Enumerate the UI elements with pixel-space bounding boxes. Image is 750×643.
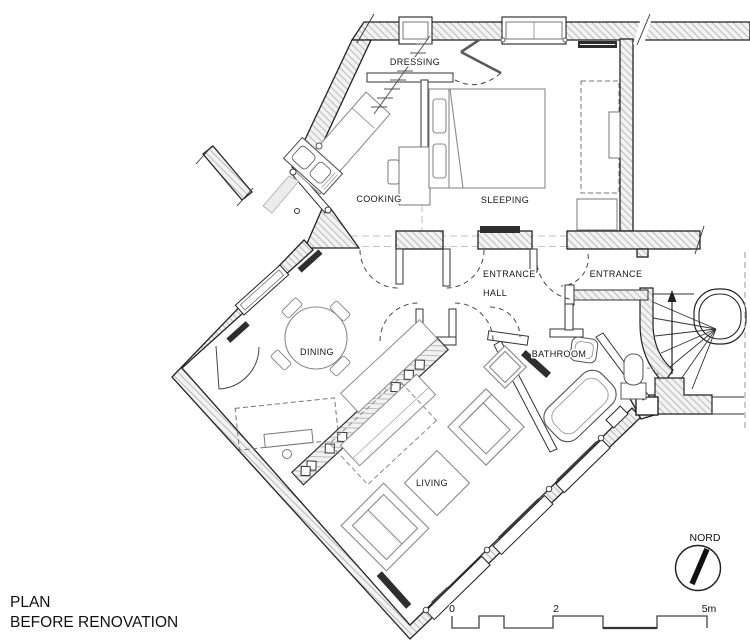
north-label: NORD	[690, 532, 721, 544]
door-lintel	[480, 226, 520, 233]
dining-table-icon	[270, 297, 350, 376]
floor-plan-canvas: DRESSING COOKING SLEEPING ENTRANCE HALL …	[0, 0, 750, 643]
bed-icon	[429, 89, 545, 188]
plan-title-line2: BEFORE RENOVATION	[10, 614, 178, 631]
plan-title-line1: PLAN	[10, 594, 51, 611]
room-label-entrance: ENTRANCE	[590, 269, 643, 279]
radiator-icon	[578, 41, 617, 48]
scale-tick-2: 2	[553, 603, 559, 615]
faucet-icon	[316, 143, 322, 149]
wall-stub	[263, 176, 299, 213]
scale-tick-5: 5m	[702, 603, 717, 615]
room-label-bathroom: BATHROOM	[532, 349, 587, 359]
north-indicator: NORD	[676, 532, 721, 591]
floor-plan-page: DRESSING COOKING SLEEPING ENTRANCE HALL …	[0, 0, 750, 643]
room-label-sleeping: SLEEPING	[481, 195, 529, 205]
scale-tick-0: 0	[449, 603, 455, 615]
armchair-icon	[448, 389, 524, 465]
window-icon	[235, 265, 288, 315]
scale-bar: 0 2 5m	[449, 603, 716, 628]
folding-door-icon	[461, 40, 501, 73]
plan-title: PLAN BEFORE RENOVATION	[10, 594, 178, 631]
window-icon	[556, 439, 610, 492]
room-label-cooking: COOKING	[356, 194, 401, 204]
shelf-icon	[609, 112, 620, 158]
room-label-dressing: DRESSING	[390, 57, 440, 67]
dining-entry-door	[216, 346, 259, 389]
stair-direction-arrow-icon	[668, 290, 677, 374]
toilet-icon	[621, 354, 646, 399]
sofa-icon	[341, 483, 429, 571]
stair-landing-step	[636, 397, 658, 415]
room-label-dining: DINING	[300, 347, 334, 357]
room-label-entrance-hall-2: HALL	[483, 288, 507, 298]
window-icon	[426, 556, 490, 619]
room-label-entrance-hall-1: ENTRANCE	[483, 269, 536, 279]
spiral-staircase	[636, 252, 746, 428]
window-icon	[493, 496, 553, 555]
dresser-icon	[577, 199, 617, 230]
room-label-living: LIVING	[416, 478, 448, 488]
